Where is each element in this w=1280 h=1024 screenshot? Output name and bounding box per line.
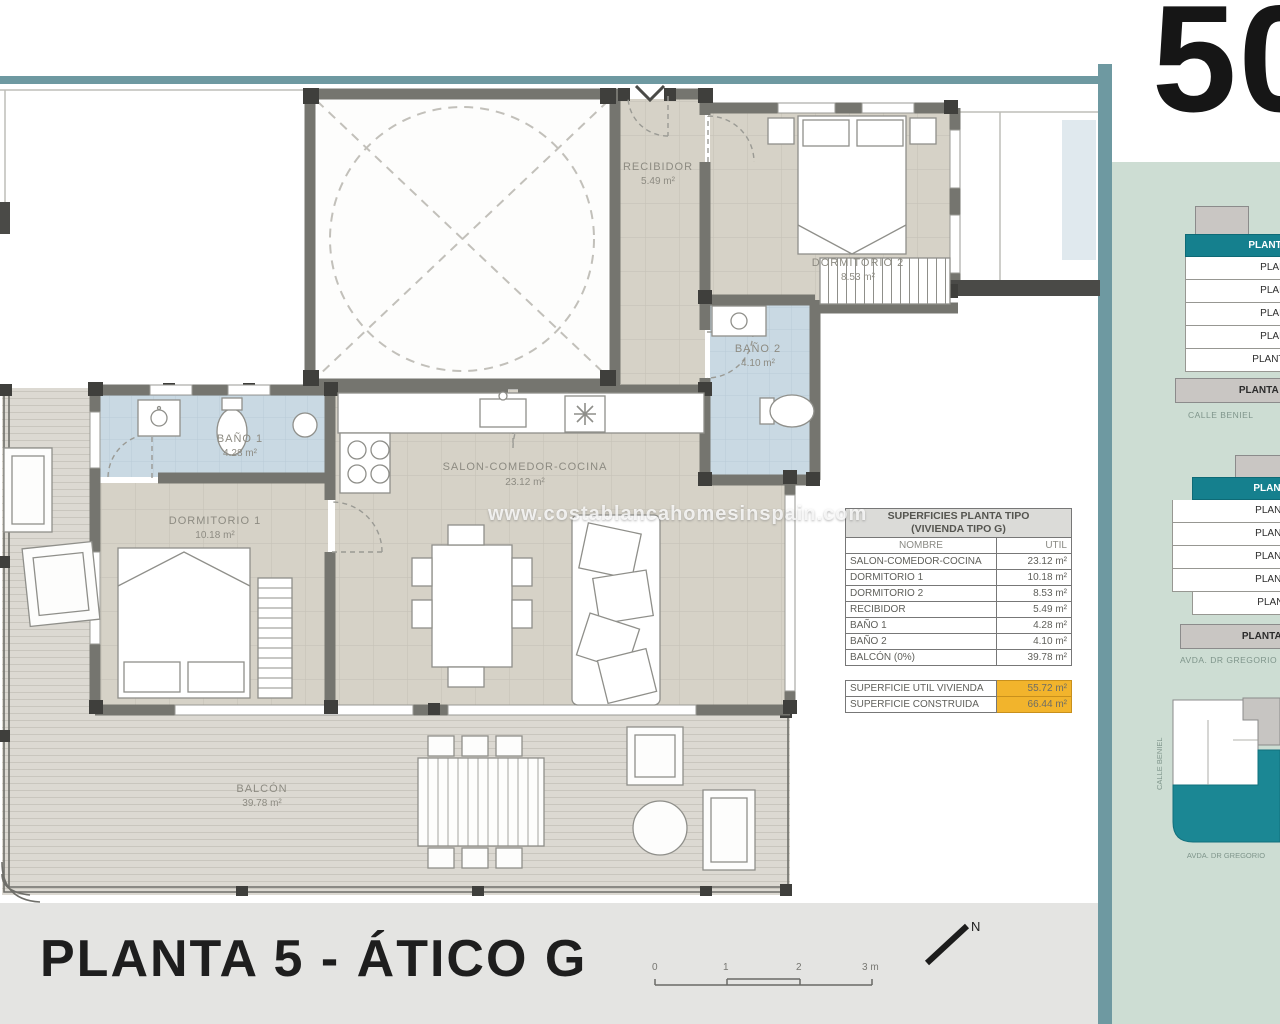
building-b-floor-atico: PLANTA ÁTICO [1192, 477, 1280, 500]
scale-tick-2: 2 [796, 962, 802, 973]
building-a-street-label: CALLE BENIEL [1188, 410, 1254, 420]
room-area-balcon: 39.78 m² [242, 798, 282, 809]
table-row: RECIBIDOR5.49 m² [846, 602, 1072, 618]
room-area-dormitorio1: 10.18 m² [195, 530, 235, 541]
surfaces-table-title: SUPERFICIES PLANTA TIPO (VIVIENDA TIPO G… [846, 509, 1072, 538]
table-row: DORMITORIO 28.53 m² [846, 586, 1072, 602]
building-a-floor: PLANTA 3ª [1185, 280, 1280, 303]
site-street-bottom-label: AVDA. DR GREGORIO [1187, 851, 1265, 860]
room-label-dormitorio2: DORMITORIO 2 [812, 257, 904, 269]
building-a-floor-atico: PLANTA ÁTICO [1185, 234, 1280, 257]
room-area-recibidor: 5.49 m² [641, 176, 676, 187]
room-area-bano2: 4.10 m² [741, 358, 776, 369]
bano1-floor [100, 395, 328, 477]
site-street-side-label: CALLE BENIEL [1155, 737, 1164, 790]
room-area-bano1: 4.28 m² [223, 448, 258, 459]
scale-tick-0: 0 [652, 962, 658, 973]
scale-tick-1: 1 [723, 962, 729, 973]
surfaces-table-title-line2: (VIVIENDA TIPO G) [911, 523, 1006, 535]
dormitorio1-bed [118, 548, 250, 698]
building-a-roof [1195, 206, 1249, 236]
floor-plan: RECIBIDOR 5.49 m² DORMITORIO 2 8.53 m² B… [0, 85, 1100, 905]
scale-tick-3: 3 m [862, 962, 879, 973]
surfaces-table: SUPERFICIES PLANTA TIPO (VIVIENDA TIPO G… [845, 508, 1072, 666]
context-pier [0, 202, 10, 234]
surfaces-tables: SUPERFICIES PLANTA TIPO (VIVIENDA TIPO G… [845, 508, 1072, 713]
north-needle [927, 926, 967, 963]
room-label-bano1: BAÑO 1 [217, 432, 263, 445]
right-frame-bar [1098, 64, 1112, 1024]
table-row: BALCÓN (0%)39.78 m² [846, 650, 1072, 666]
room-label-dormitorio1: DORMITORIO 1 [169, 515, 261, 527]
room-area-salon: 23.12 m² [505, 477, 545, 488]
building-a-floor: PLANTA 4ª [1185, 257, 1280, 280]
building-b-street-label: AVDA. DR GREGORIO [1180, 655, 1277, 665]
table-row: SUPERFICIE UTIL VIVIENDA 55.72 m² [846, 681, 1072, 697]
recibidor-floor [620, 99, 705, 390]
building-a-floor: PLANTA 2ª [1185, 303, 1280, 326]
building-b-floor: PLANTA 2ª [1172, 546, 1280, 569]
table-row: DORMITORIO 110.18 m² [846, 570, 1072, 586]
building-a-floor: PLANTA BAJA [1185, 349, 1280, 372]
building-a-floor: PLANTA 1ª [1185, 326, 1280, 349]
watermark: www.costablancahomesinspain.com [488, 503, 867, 526]
room-label-salon: SALON-COMEDOR-COCINA [443, 461, 608, 473]
table-row: BAÑO 24.10 m² [846, 634, 1072, 650]
summary-table: SUPERFICIE UTIL VIVIENDA 55.72 m² SUPERF… [845, 680, 1072, 713]
col-header-util: UTIL [997, 538, 1072, 554]
top-frame-bar [0, 76, 1112, 84]
building-b-floor: PLANTA 3ª [1172, 523, 1280, 546]
col-header-nombre: NOMBRE [846, 538, 997, 554]
neighbor-bath-hint [1062, 120, 1096, 260]
fridge-snowflake-icon [574, 403, 596, 425]
sofa [572, 515, 660, 705]
table-row: BAÑO 14.28 m² [846, 618, 1072, 634]
util-total-highlight: 55.72 m² [997, 681, 1072, 697]
room-label-balcon: BALCÓN [236, 782, 287, 795]
entrance-arrow-icon [636, 86, 664, 100]
building-b-floor: PLANTA 1ª [1172, 569, 1280, 592]
scale-bar [655, 979, 872, 985]
north-arrow: N [913, 917, 980, 977]
scale-and-north: 0 1 2 3 m N [600, 903, 1080, 1024]
building-b-roof [1235, 455, 1280, 479]
plan-number: 50 [1152, 0, 1280, 147]
building-b-floor-sotano: PLANTA SÓTANO [1180, 624, 1280, 649]
north-label: N [971, 919, 980, 934]
room-label-bano2: BAÑO 2 [735, 342, 781, 355]
building-b-floor: PLANTA BAJA [1192, 592, 1280, 615]
page-title: PLANTA 5 - ÁTICO G [40, 929, 587, 989]
site-plan: CALLE BENIEL AVDA. DR GREGORIO [1148, 690, 1280, 870]
building-a-floor-sotano: PLANTA SÓTANO [1175, 378, 1280, 403]
table-row: SUPERFICIE CONSTRUIDA 66.44 m² [846, 697, 1072, 713]
floorplan-page: { "window": { "plan_number": "50", "wate… [0, 0, 1280, 1024]
building-b-floor: PLANTA 4ª [1172, 500, 1280, 523]
room-label-recibidor: RECIBIDOR [623, 161, 693, 173]
room-area-dormitorio2: 8.53 m² [841, 272, 876, 283]
dormitorio1-wardrobe [258, 578, 292, 698]
built-total-highlight: 66.44 m² [997, 697, 1072, 713]
surfaces-table-title-line1: SUPERFICIES PLANTA TIPO [888, 510, 1030, 522]
table-row: SALON-COMEDOR-COCINA23.12 m² [846, 554, 1072, 570]
scale-labels: 0 1 2 3 m [652, 962, 879, 973]
